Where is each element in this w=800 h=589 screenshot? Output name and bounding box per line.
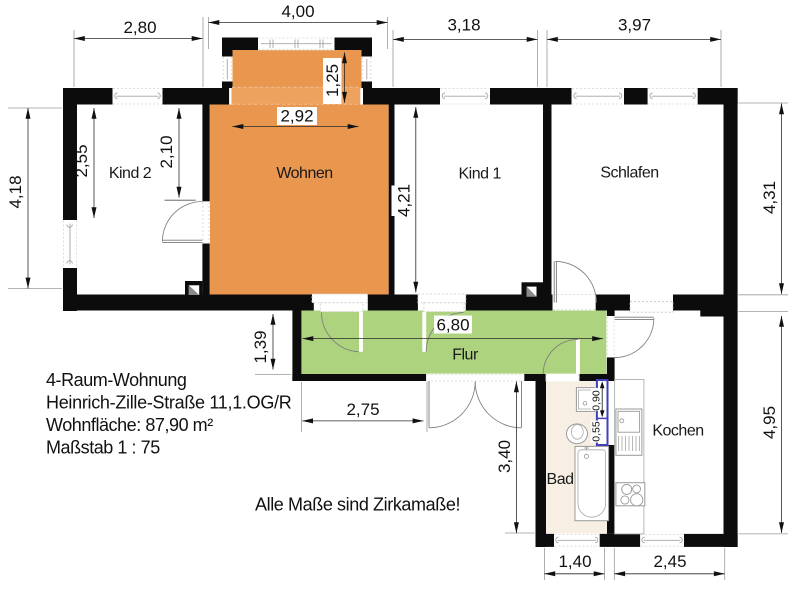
svg-text:3,97: 3,97 [618, 16, 651, 35]
svg-text:Flur: Flur [452, 347, 479, 364]
svg-text:Kind 1: Kind 1 [459, 166, 502, 183]
svg-text:4-Raum-Wohnung: 4-Raum-Wohnung [46, 370, 186, 390]
svg-text:3,18: 3,18 [447, 16, 480, 35]
svg-text:0,55: 0,55 [590, 421, 602, 442]
svg-text:Wohnen: Wohnen [276, 165, 332, 182]
svg-text:2,45: 2,45 [653, 552, 686, 571]
svg-text:2,10: 2,10 [157, 135, 176, 168]
svg-text:0,90: 0,90 [590, 390, 602, 411]
svg-text:4,95: 4,95 [760, 406, 779, 439]
svg-text:2,92: 2,92 [280, 107, 313, 126]
svg-text:3,40: 3,40 [495, 440, 514, 473]
svg-text:4,18: 4,18 [6, 175, 25, 208]
svg-text:Maßstab 1 : 75: Maßstab 1 : 75 [46, 437, 160, 457]
svg-text:Wohnfläche: 87,90 m²: Wohnfläche: 87,90 m² [46, 415, 213, 435]
svg-text:1,40: 1,40 [558, 552, 591, 571]
svg-text:4,00: 4,00 [281, 2, 314, 21]
svg-text:Schlafen: Schlafen [600, 165, 658, 182]
svg-text:Kochen: Kochen [652, 423, 703, 440]
svg-text:Bad: Bad [547, 471, 574, 488]
svg-text:1,25: 1,25 [323, 64, 342, 97]
svg-text:Alle Maße sind Zirkamaße!: Alle Maße sind Zirkamaße! [255, 495, 460, 515]
svg-text:1,39: 1,39 [251, 330, 270, 363]
svg-text:Heinrich-Zille-Straße 11,1.OG/: Heinrich-Zille-Straße 11,1.OG/R [46, 392, 292, 412]
svg-text:2,75: 2,75 [346, 400, 379, 419]
svg-text:4,21: 4,21 [395, 184, 414, 217]
svg-text:4,31: 4,31 [760, 181, 779, 214]
svg-text:2,55: 2,55 [72, 144, 91, 177]
svg-text:Kind 2: Kind 2 [109, 165, 152, 182]
svg-text:6,80: 6,80 [436, 316, 469, 335]
svg-text:2,80: 2,80 [123, 18, 156, 37]
